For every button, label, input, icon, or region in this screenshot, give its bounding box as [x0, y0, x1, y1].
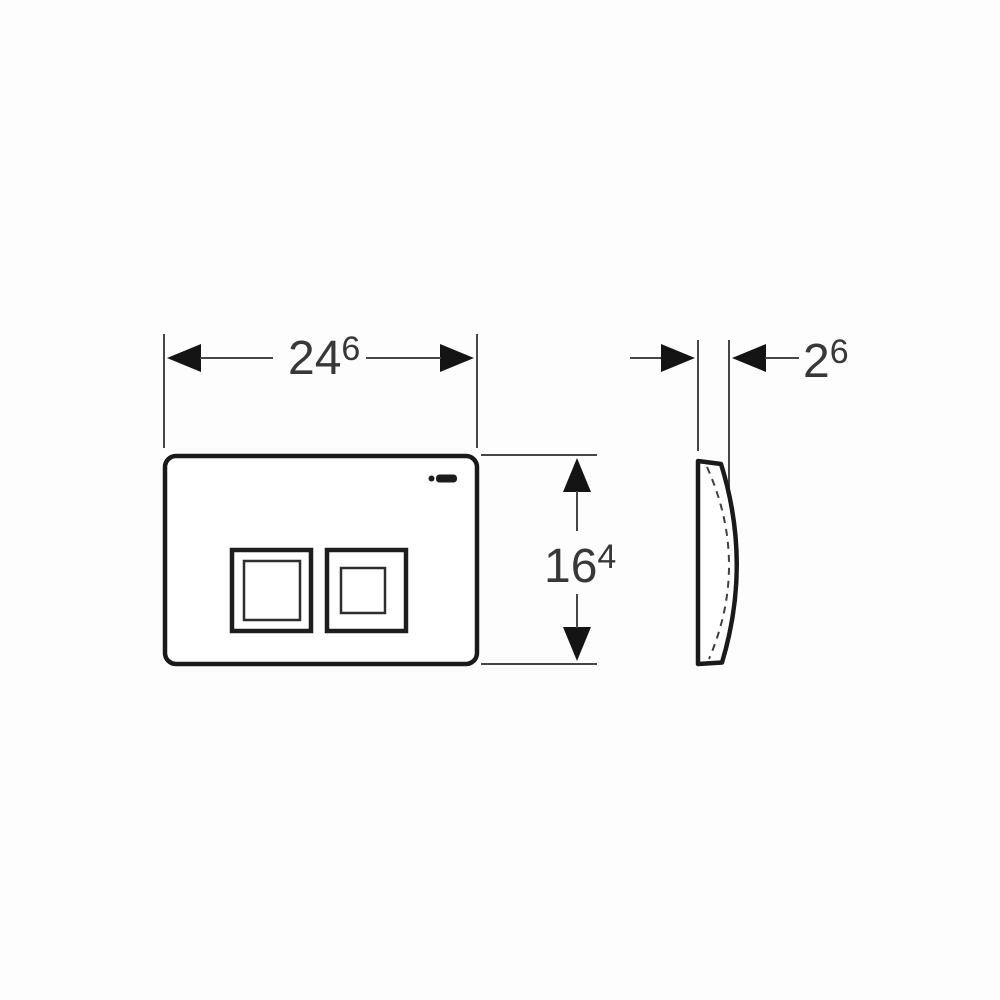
small-flush-button [327, 550, 406, 631]
depth-dimension-value: 26 [803, 333, 849, 388]
front-view [165, 456, 477, 664]
height-arrow-bottom-icon [563, 627, 591, 661]
width-dimension-value: 246 [288, 330, 360, 385]
width-dimension: 246 [164, 330, 477, 448]
width-arrow-left-icon [167, 344, 201, 372]
height-arrow-top-icon [563, 458, 591, 492]
height-dimension-value: 164 [544, 538, 616, 593]
depth-arrow-left-icon [661, 344, 695, 372]
depth-dimension: 26 [630, 333, 849, 489]
large-flush-button [232, 550, 311, 631]
large-button-inner-square [244, 561, 300, 620]
flush-plate-outline [165, 456, 477, 664]
side-profile-view [698, 461, 737, 664]
small-button-inner-square [341, 568, 385, 613]
dimension-drawing: 246 164 26 [0, 0, 1000, 1000]
depth-arrow-right-icon [732, 344, 766, 372]
width-arrow-right-icon [440, 344, 474, 372]
drawing-canvas: 246 164 26 [0, 0, 1000, 1000]
height-dimension: 164 [481, 455, 616, 664]
